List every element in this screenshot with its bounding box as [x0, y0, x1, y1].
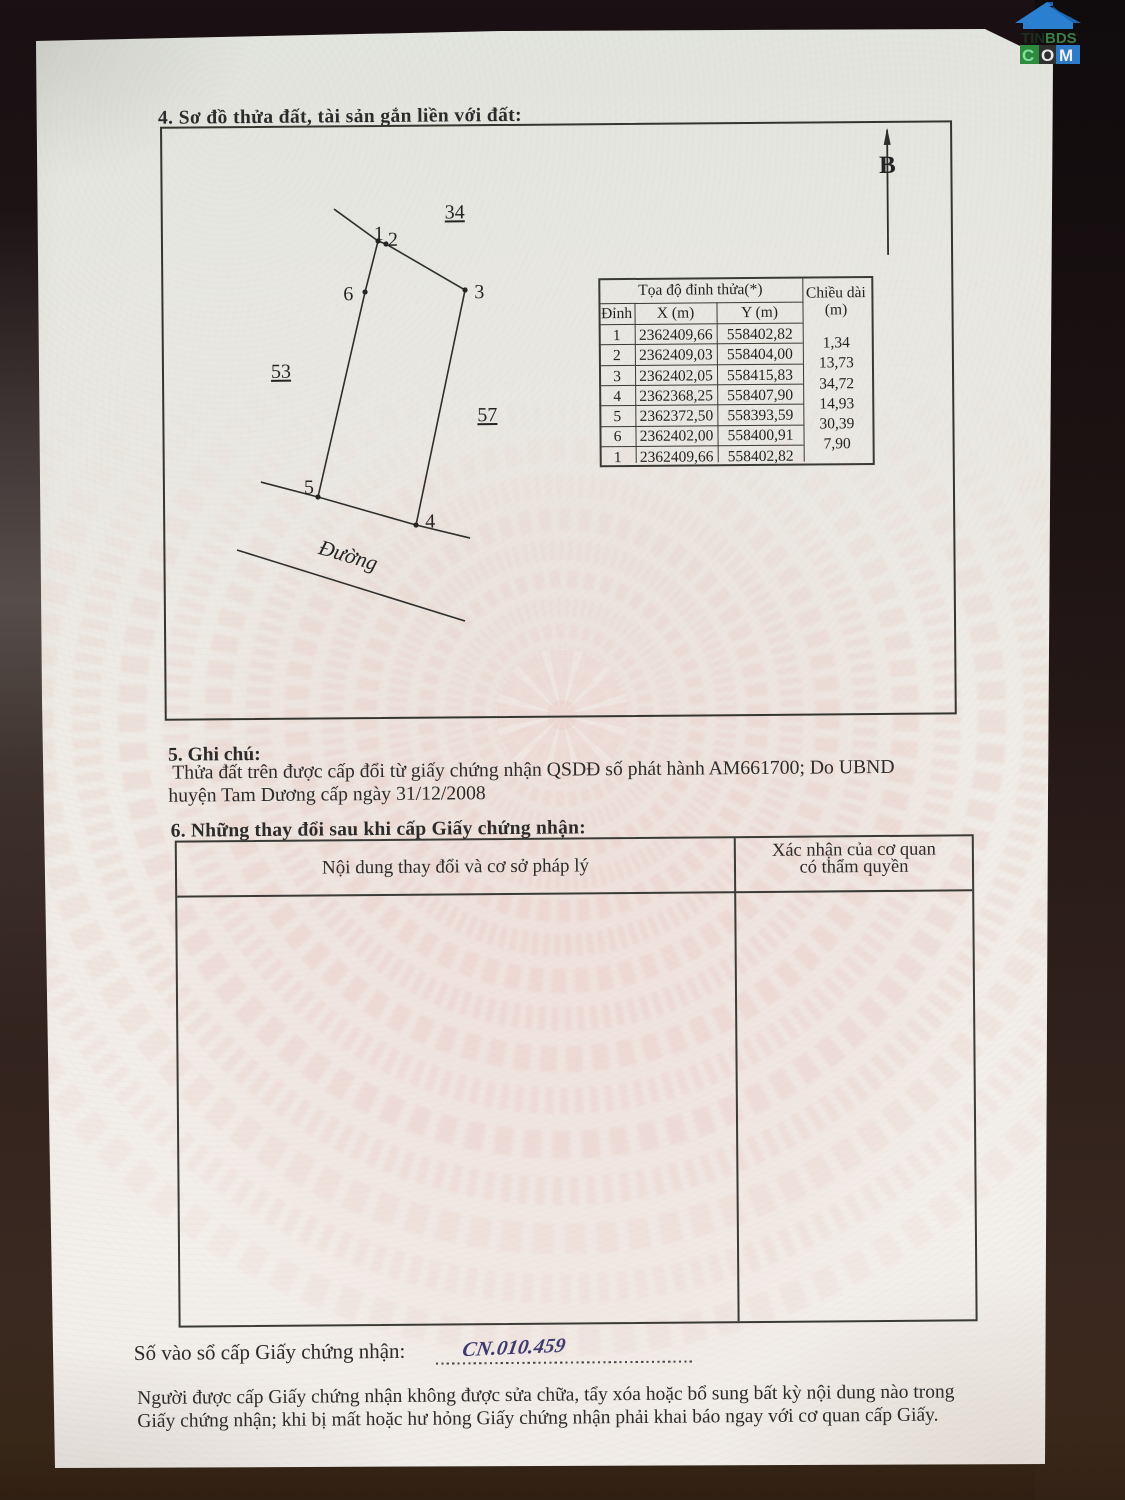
svg-text:M: M: [1059, 46, 1073, 65]
svg-text:34: 34: [445, 201, 465, 223]
svg-text:BDS: BDS: [1045, 30, 1077, 47]
svg-text:TIN: TIN: [1021, 30, 1045, 47]
svg-text:4: 4: [425, 511, 435, 533]
svg-text:3: 3: [474, 281, 484, 303]
svg-text:1: 1: [374, 223, 384, 245]
svg-text:Đường: Đường: [315, 535, 381, 576]
svg-text:C: C: [1022, 46, 1034, 65]
svg-text:2: 2: [388, 229, 398, 251]
svg-text:B: B: [879, 152, 896, 179]
svg-text:O: O: [1041, 46, 1054, 65]
svg-text:53: 53: [271, 361, 291, 383]
svg-text:57: 57: [477, 404, 497, 426]
svg-text:6: 6: [343, 283, 353, 305]
svg-text:5: 5: [304, 477, 314, 499]
